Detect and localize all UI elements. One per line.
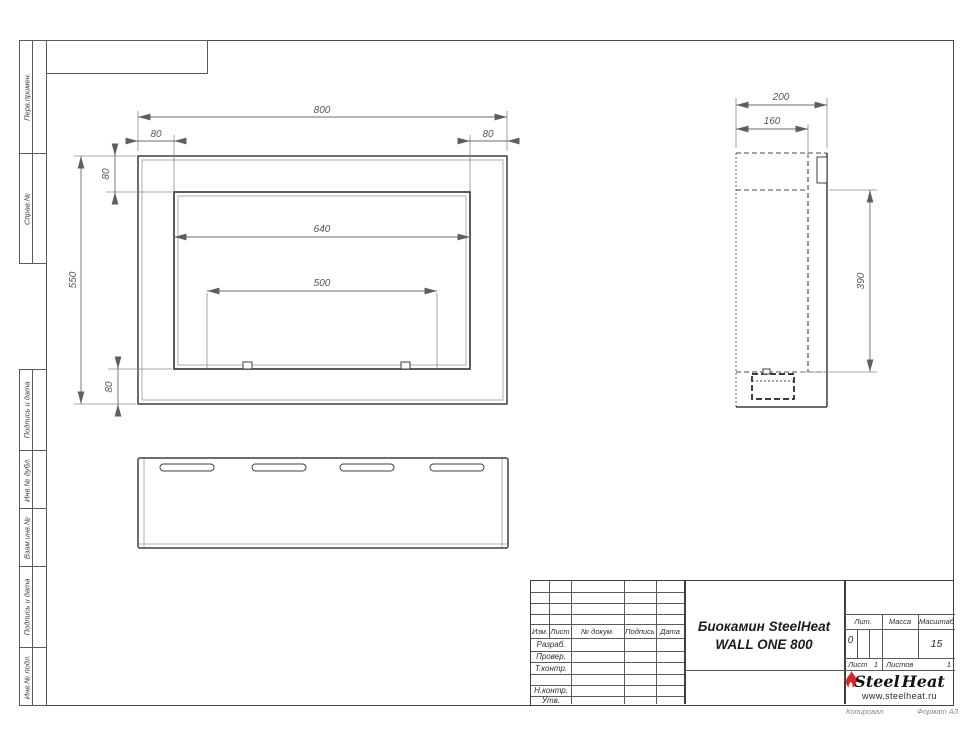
tb-line (869, 629, 870, 658)
tb-col-izm: Изм. (531, 624, 549, 638)
tb-row-tkontr: Т.контр. (531, 662, 571, 674)
tb-line (857, 629, 858, 658)
strip-cell-vzam-inv: Взам.инв.№ (19, 508, 47, 567)
strip-divider (32, 648, 33, 705)
logo-text-steel: Steel (854, 674, 899, 690)
tb-sheet-cell: Лист 1 (844, 658, 882, 670)
strip-cell-podpis-data-1: Подпись и дата (19, 369, 47, 451)
strip-divider (32, 41, 33, 153)
format-label: Формат А3 (917, 707, 958, 716)
strip-divider (32, 154, 33, 263)
tb-row-utv: Утв. (531, 696, 571, 704)
logo-wordmark: Steel Heat (854, 674, 944, 690)
tb-line (531, 614, 684, 615)
strip-cell-podpis-data-2: Подпись и дата (19, 566, 47, 648)
logo-text-heat: Heat (902, 674, 945, 690)
tb-sheets-label: Листов (886, 660, 913, 669)
strip-cell-sprav-no: Справ.№ (19, 153, 47, 264)
tb-line (531, 674, 684, 675)
strip-label: Инв.№ подл. (23, 654, 32, 698)
title-block: Изм. Лист № докум. Подпись Дата Разраб. … (530, 580, 954, 706)
tb-col-date: Дата (656, 624, 684, 638)
tb-mass-label: Масса (882, 614, 918, 629)
strip-cell-inv-dubl: Инв.№ дубл. (19, 450, 47, 509)
company-logo: Steel Heat www.steelheat.ru (844, 670, 955, 704)
strip-divider (32, 567, 33, 647)
tb-row-nkontr: Н.контр. (531, 685, 571, 696)
tb-sheets-cell: Листов 1 (882, 658, 955, 670)
drawing-sheet: 800 80 80 80 550 640 500 80 (0, 0, 970, 749)
tb-col-sign: Подпись (624, 624, 656, 638)
tb-line (531, 592, 684, 593)
tb-line (531, 603, 684, 604)
document-title-line2: WALL ONE 800 (715, 637, 812, 652)
tb-scale-label: Масштаб (918, 614, 955, 629)
tb-row-razrab: Разраб. (531, 638, 571, 651)
strip-label: Инв.№ дубл. (23, 457, 32, 501)
document-title: Биокамин SteelHeat WALL ONE 800 (684, 581, 844, 680)
strip-divider (32, 370, 33, 450)
strip-label: Справ.№ (23, 192, 32, 224)
tb-lit-value: 0 (844, 629, 857, 651)
strip-cell-inv-podl: Инв.№ подл. (19, 647, 47, 706)
tb-scale-value: 15 (918, 629, 955, 658)
strip-label: Взам.инв.№ (23, 516, 32, 558)
tb-col-list: Лист (549, 624, 571, 638)
strip-divider (32, 509, 33, 566)
tb-sheets-value: 1 (947, 660, 951, 669)
logo-url: www.steelheat.ru (862, 691, 937, 701)
strip-divider (32, 451, 33, 508)
strip-label: Перв.примен. (23, 73, 32, 121)
document-title-line1: Биокамин SteelHeat (698, 619, 830, 634)
designation-box (46, 40, 208, 74)
tb-lit-label: Лит. (844, 614, 882, 629)
strip-label: Подпись и дата (23, 382, 32, 439)
tb-sheet-value: 1 (874, 660, 878, 669)
copied-label: Копировал (846, 707, 883, 716)
tb-row-prover: Провер. (531, 651, 571, 662)
tb-col-doc: № докум. (571, 624, 624, 638)
strip-cell-perv-primen: Перв.примен. (19, 40, 47, 154)
tb-sheet-label: Лист (848, 660, 867, 669)
strip-label: Подпись и дата (23, 579, 32, 636)
